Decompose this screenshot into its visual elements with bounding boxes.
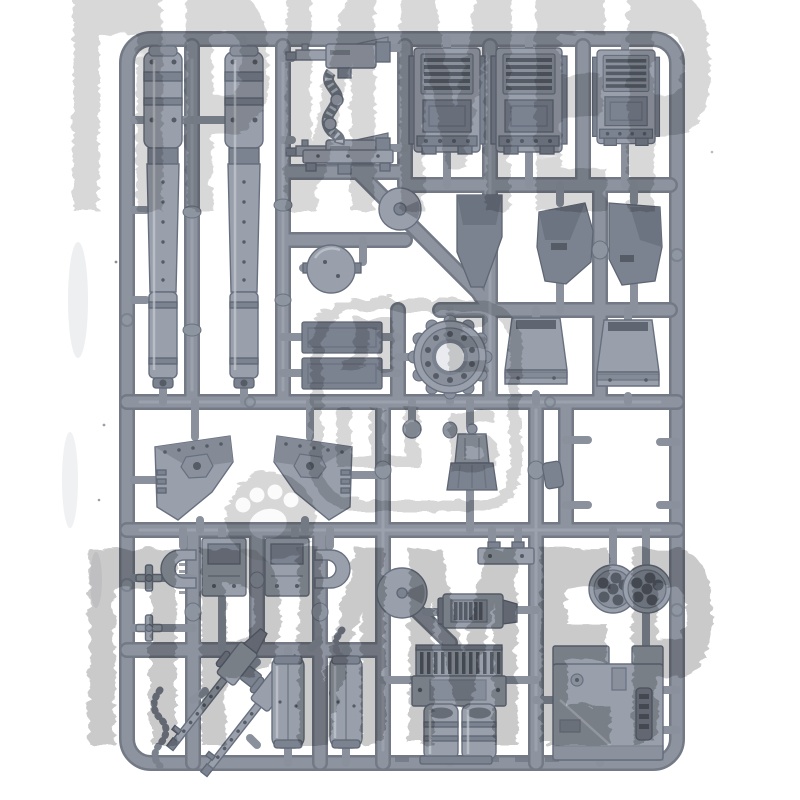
sprue-photo: ПРИМЕР ПРИМЕР Л Е Ш Б [0, 0, 800, 800]
watermark-bottom-text: ПРИМЕР [75, 494, 715, 800]
small-arm-part [542, 461, 564, 490]
watermark-glyph-4: Б [440, 394, 501, 487]
watermark-top-text: ПРИМЕР [58, 0, 713, 279]
watermark-glyph-3: Ш [326, 390, 425, 483]
sprue-photo-svg: ПРИМЕР ПРИМЕР Л Е Ш Б [0, 0, 800, 800]
watermark-glyph-2: Е [438, 297, 490, 386]
exhaust-flare-2 [597, 320, 659, 386]
watermark-glyph-1: Л [336, 302, 397, 388]
